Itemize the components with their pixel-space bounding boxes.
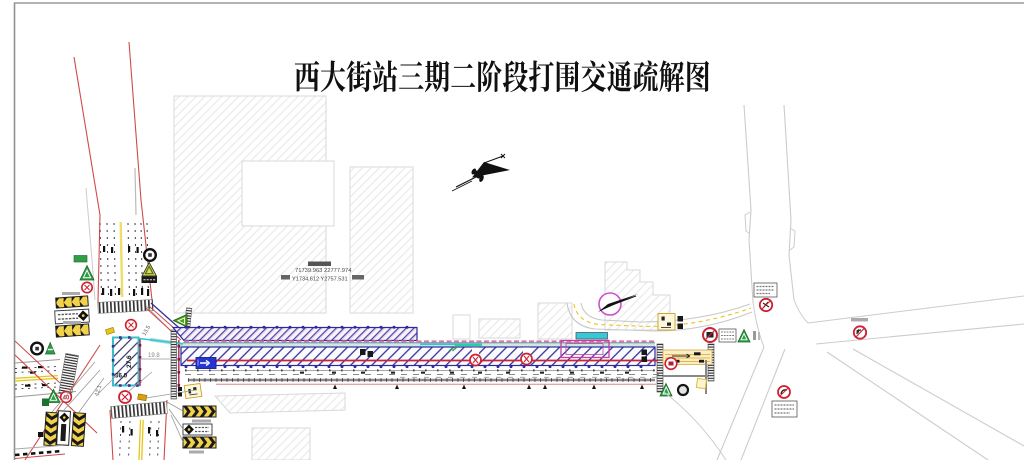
- svg-text:27.6: 27.6: [126, 355, 133, 368]
- svg-text:19.8: 19.8: [148, 353, 160, 359]
- svg-text:71739.963 22777.974: 71739.963 22777.974: [295, 268, 352, 274]
- svg-text:Y1734.612 Y2757.531: Y1734.612 Y2757.531: [292, 277, 348, 283]
- svg-text:36.0: 36.0: [115, 373, 128, 380]
